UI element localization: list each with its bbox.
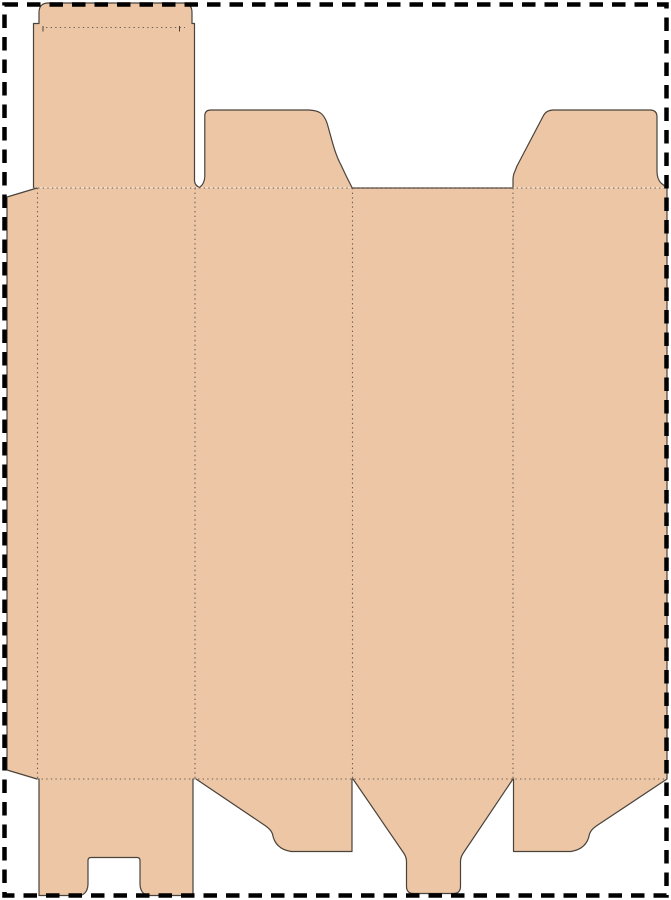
- bottom-dust-flap-left: [196, 779, 352, 852]
- bottom-tongue-flap: [353, 779, 513, 894]
- dust-flap-top-right: [513, 110, 667, 188]
- bottom-dust-flap-right: [514, 779, 668, 852]
- dust-flap-top-left: [200, 110, 353, 188]
- bottom-slotted-flap: [39, 779, 193, 896]
- lid-tuck-flap: [34, 3, 200, 188]
- dieline-page: [0, 0, 671, 900]
- dieline-drawing: [0, 0, 671, 900]
- glue-flap: [7, 188, 37, 779]
